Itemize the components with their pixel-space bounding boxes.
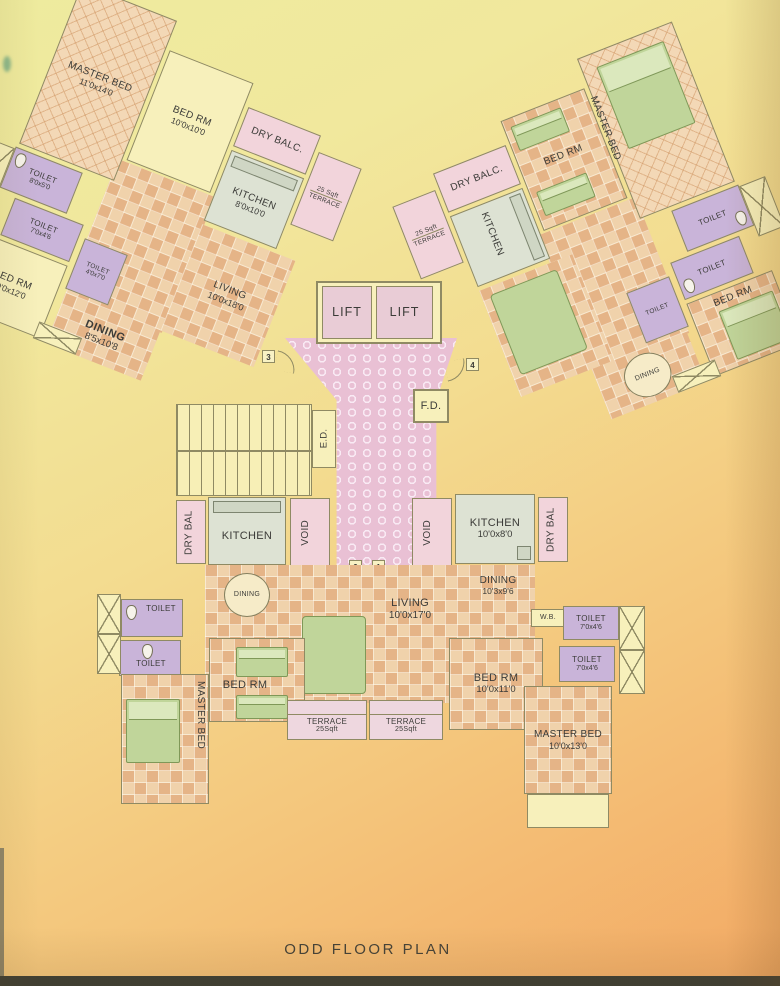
fire-duct-label: F.D. — [421, 400, 442, 413]
room-label: TOILET — [645, 302, 670, 318]
room-label: TOILET — [576, 614, 606, 623]
marker-label: 4 — [470, 361, 474, 370]
dining-table-icon: DINING — [617, 346, 678, 405]
room-dims: 10'0x11'0 — [476, 685, 515, 696]
scan-blemish — [3, 56, 11, 72]
plan-title: ODD FLOOR PLAN — [0, 941, 758, 958]
room-label: DRY BAL — [184, 510, 196, 555]
toilet-fixture-icon — [13, 152, 29, 170]
lift-label: LIFT — [390, 305, 420, 319]
br-toilet-2: TOILET 7'0x4'6 — [559, 646, 615, 682]
staircase — [176, 404, 312, 496]
marker-label: 3 — [266, 353, 270, 362]
terrace-label-line1: TERRACE — [288, 714, 366, 726]
room-label: TOILET — [126, 659, 176, 668]
br-master-bed: MASTER BED 10'0x13'0 — [524, 686, 612, 794]
kitchen-counter-icon — [213, 501, 281, 513]
bl-kitchen: KITCHEN — [208, 497, 286, 565]
room-dims: 10'3x9'6 — [482, 587, 513, 597]
br-dining-label: DINING 10'3x9'6 — [458, 572, 538, 600]
ledge-icon — [619, 606, 645, 650]
bl-void: VOID — [290, 498, 330, 566]
door-arc-icon — [274, 350, 297, 373]
bed-icon — [236, 695, 288, 719]
bl-dining-label: DINING — [234, 591, 260, 599]
room-label: TOILET — [696, 258, 727, 277]
room-label: MASTER BED — [195, 681, 207, 749]
door-arc-icon — [444, 358, 467, 381]
bed-icon — [536, 172, 596, 216]
terrace-label-line2: 25Sqft — [288, 726, 366, 734]
dining-table-icon: DINING — [224, 573, 270, 617]
ledge-icon — [97, 634, 121, 674]
room-dims: 7'0x4'6 — [576, 665, 598, 673]
room-label: BED RM — [212, 679, 278, 692]
br-toilet-1: TOILET 7'0x4'6 — [563, 606, 619, 640]
room-label: LIVING — [391, 597, 429, 610]
scan-edge-bottom — [0, 976, 780, 986]
terrace-label-line1: TERRACE — [370, 714, 442, 726]
room-label: TOILET — [140, 604, 182, 613]
toilet-fixture-icon — [682, 277, 698, 295]
bl-terrace: TERRACE 25Sqft — [287, 700, 367, 740]
room-dims: 10'0x17'0 — [389, 610, 431, 622]
sofa-icon — [302, 616, 366, 694]
lift-label: LIFT — [332, 305, 362, 319]
kitchen-counter-icon — [517, 546, 531, 560]
ledge-icon — [97, 594, 121, 634]
room-label: BED RM — [474, 672, 519, 685]
floor-plan-page: MASTER BED 11'0x14'0 TOILET 8'0x5'0 BED … — [0, 0, 780, 986]
room-label: MASTER BED — [534, 729, 602, 741]
bl-toilet-1: TOILET — [121, 599, 183, 637]
room-label: VOID — [422, 520, 434, 546]
bed-icon — [126, 699, 180, 763]
electrical-duct-label: E.D. — [319, 429, 330, 449]
room-label: VOID — [300, 520, 312, 546]
room-label: KITCHEN — [222, 530, 272, 543]
room-label: DRY BALC. — [449, 163, 505, 194]
toilet-fixture-icon — [142, 644, 153, 659]
scan-edge-left — [0, 848, 4, 986]
fire-duct: F.D. — [413, 389, 449, 423]
room-label: KITCHEN — [470, 517, 520, 530]
room-label: KITCHEN — [478, 211, 506, 258]
bed-icon — [236, 647, 288, 677]
br-terrace: TERRACE 25Sqft — [369, 700, 443, 740]
lift-right: LIFT — [376, 286, 433, 339]
room-label: DINING — [634, 366, 661, 383]
bl-dry-bal: DRY BAL — [176, 500, 206, 564]
terrace-label-line2: 25Sqft — [370, 726, 442, 734]
lift-left: LIFT — [322, 286, 372, 339]
room-label: W.B. — [540, 614, 556, 622]
electrical-duct: E.D. — [312, 410, 336, 468]
room-label: TOILET — [697, 208, 728, 227]
wing-top-right: MASTER BED TOILET BED RM DRY BALC. KITCH… — [393, 21, 780, 455]
toilet-fixture-icon — [126, 605, 137, 620]
room-dims: 7'0x4'6 — [580, 624, 602, 632]
bl-master-bed: MASTER BED — [121, 674, 209, 804]
room-label: DRY BAL — [546, 507, 558, 552]
bed-icon — [510, 107, 570, 151]
room-label: TOILET — [572, 655, 602, 664]
entrance-marker-4: 4 — [466, 358, 479, 371]
br-kitchen: KITCHEN 10'0x8'0 — [455, 494, 535, 564]
bl-toilet-2: TOILET — [119, 640, 181, 676]
sofa-icon — [490, 269, 589, 375]
br-master-bed-porch — [527, 794, 609, 828]
room-label: DRY BALC. — [249, 125, 305, 156]
br-wb: W.B. — [531, 609, 565, 627]
br-dry-bal: DRY BAL — [538, 497, 568, 562]
room-dims: 10'0x8'0 — [478, 530, 513, 541]
toilet-fixture-icon — [733, 209, 749, 227]
br-void: VOID — [412, 498, 452, 566]
ledge-icon — [619, 650, 645, 694]
entrance-marker-3: 3 — [262, 350, 275, 363]
br-living-label: LIVING 10'0x17'0 — [362, 592, 458, 626]
room-dims: 10'0x13'0 — [549, 741, 587, 751]
